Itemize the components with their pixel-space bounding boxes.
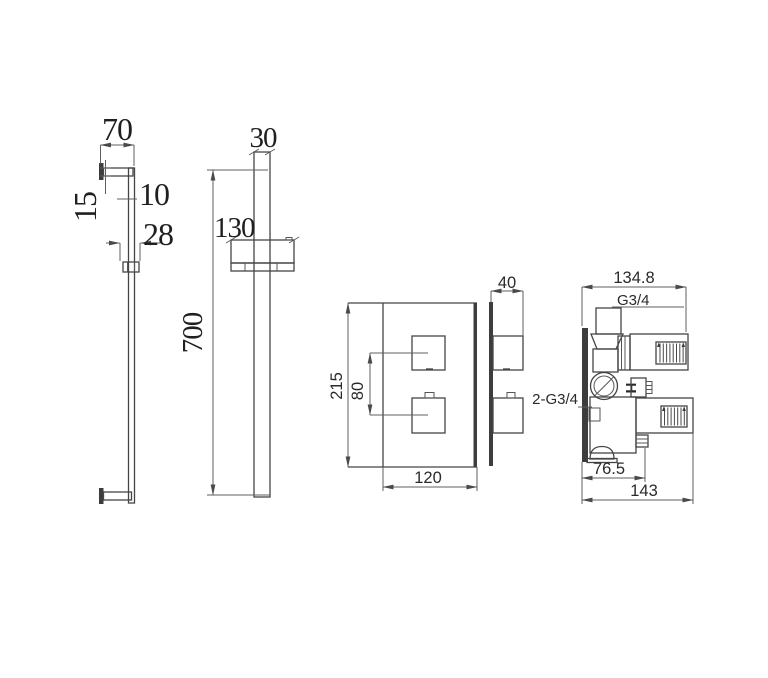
dim-label-rail-depth: 10 <box>139 176 169 212</box>
dim-80: 80 <box>349 353 428 415</box>
dim-label-knob-spacing: 80 <box>349 382 367 400</box>
bottom-knob-side <box>493 393 523 434</box>
valve-front-view: 215 80 120 <box>328 303 477 491</box>
upper-valve-block <box>593 349 618 372</box>
dim-label-total-depth: 143 <box>630 482 658 500</box>
bottom-outlet-stub <box>636 435 648 447</box>
technical-drawing-canvas: 70 15 10 28 <box>0 0 768 678</box>
dim-30: 30 <box>249 122 277 155</box>
label-g34: G3/4 <box>612 292 684 309</box>
dim-label-plate-width: 120 <box>414 469 442 487</box>
bottom-arm <box>104 492 132 500</box>
mounting-plate <box>582 328 588 462</box>
bottom-wall-flange <box>99 488 104 504</box>
top-outlet-port <box>596 308 621 334</box>
dim-120: 120 <box>383 467 477 491</box>
rail-profile <box>129 168 135 503</box>
inlet-thread-label: 2-G3/4 <box>532 391 578 408</box>
dim-label-arm-length: 70 <box>102 111 132 147</box>
bottom-knob-front <box>412 393 445 434</box>
dim-label-arm-thickness: 15 <box>67 192 103 222</box>
dim-label-slider-width: 130 <box>214 212 255 244</box>
rail-side-view: 70 15 10 28 <box>67 111 173 504</box>
rail-front-view: 30 130 700 <box>177 122 299 497</box>
rail-front <box>254 152 270 497</box>
dim-label-body-depth: 76.5 <box>593 460 625 478</box>
plate-right-edge <box>474 303 478 467</box>
lower-valve-body <box>590 397 636 453</box>
dim-10: 10 <box>117 176 169 212</box>
dim-label-rail-width: 30 <box>250 122 278 154</box>
dim-40: 40 <box>491 274 523 336</box>
dim-label-rail-length: 700 <box>177 312 209 353</box>
dim-label-plate-height: 215 <box>328 372 346 400</box>
slider-bracket <box>123 262 139 272</box>
valve-side-view: 40 <box>489 274 523 466</box>
plate-side-profile <box>489 302 493 466</box>
dim-28: 28 <box>106 216 173 261</box>
upper-knurled-handle <box>656 342 686 364</box>
dim-label-plate-depth: 40 <box>498 274 516 292</box>
top-wall-flange <box>99 163 104 180</box>
drawing-svg: 70 15 10 28 <box>0 0 768 678</box>
dim-215: 215 <box>328 303 348 467</box>
lower-knurled-handle <box>661 406 687 427</box>
dim-70: 70 <box>101 111 135 166</box>
thermostat-dial <box>591 373 618 400</box>
top-thread-label: G3/4 <box>617 292 650 309</box>
dim-label-overall-depth: 134.8 <box>613 269 654 287</box>
dim-label-bracket-depth: 28 <box>143 216 173 252</box>
dim-15: 15 <box>67 160 111 222</box>
valve-body-view: H <box>532 269 693 504</box>
top-knob-side <box>493 336 523 370</box>
body-left-notch <box>589 408 600 421</box>
